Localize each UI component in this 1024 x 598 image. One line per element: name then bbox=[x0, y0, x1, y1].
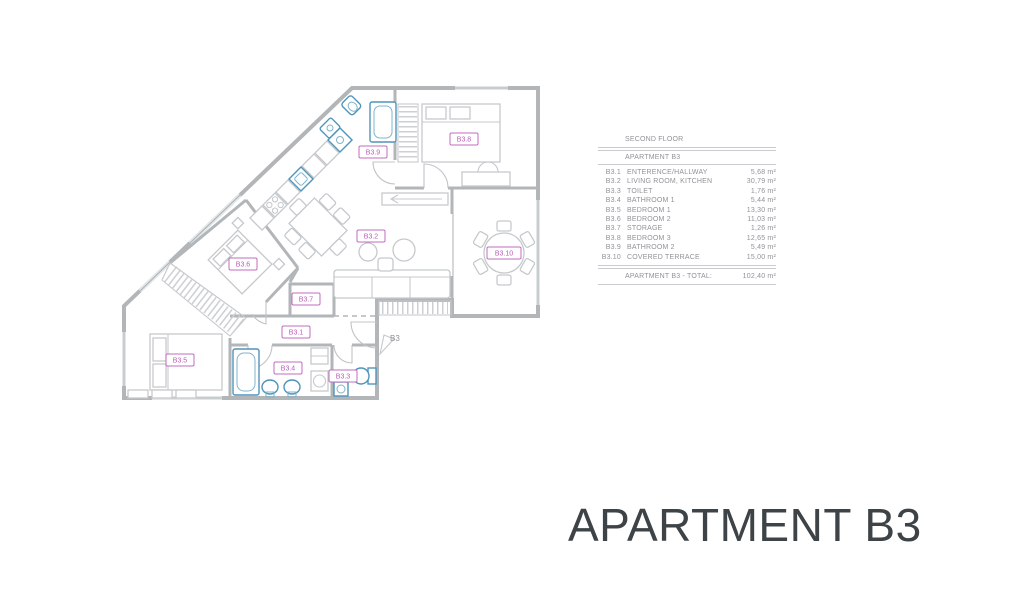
total-label: APARTMENT B3 - TOTAL: bbox=[625, 273, 743, 280]
svg-text:B3.9: B3.9 bbox=[366, 150, 381, 157]
svg-text:B3.4: B3.4 bbox=[281, 366, 296, 373]
room-area: 15,00 m² bbox=[747, 253, 776, 262]
legend-row-b3-1: B3.1ENTERENCE/HALLWAY5,68 m² bbox=[598, 168, 776, 177]
divider bbox=[598, 265, 776, 266]
svg-text:B3.3: B3.3 bbox=[336, 374, 351, 381]
room-name: BATHROOM 1 bbox=[627, 196, 751, 205]
room-label-b3-6: B3.6 bbox=[229, 258, 257, 270]
room-name: ENTERENCE/HALLWAY bbox=[627, 168, 751, 177]
legend-floor-header: SECOND FLOOR bbox=[598, 135, 776, 147]
room-name: STORAGE bbox=[627, 224, 751, 233]
room-area: 5,44 m² bbox=[751, 196, 776, 205]
entrance-marker: B3 bbox=[380, 334, 400, 354]
room-label-b3-1: B3.1 bbox=[282, 326, 310, 338]
room-name: LIVING ROOM, KITCHEN bbox=[627, 177, 747, 186]
svg-text:B3.6: B3.6 bbox=[236, 262, 251, 269]
legend-table: SECOND FLOOR APARTMENT B3 B3.1ENTERENCE/… bbox=[598, 135, 776, 285]
svg-text:B3.10: B3.10 bbox=[495, 251, 513, 258]
svg-text:B3.8: B3.8 bbox=[457, 137, 472, 144]
room-area: 5,68 m² bbox=[751, 168, 776, 177]
legend-total-row: APARTMENT B3 - TOTAL: 102,40 m² bbox=[598, 269, 776, 284]
room-label-b3-2: B3.2 bbox=[357, 230, 385, 242]
legend-rows: B3.1ENTERENCE/HALLWAY5,68 m² B3.2LIVING … bbox=[598, 165, 776, 265]
room-name: TOILET bbox=[627, 187, 751, 196]
entrance-label: B3 bbox=[390, 334, 400, 343]
svg-text:B3.5: B3.5 bbox=[173, 358, 188, 365]
room-code: B3.1 bbox=[598, 168, 621, 177]
svg-text:B3.7: B3.7 bbox=[299, 297, 314, 304]
room-label-b3-5: B3.5 bbox=[166, 354, 194, 366]
room-code: B3.2 bbox=[598, 177, 621, 186]
room-code: B3.3 bbox=[598, 187, 621, 196]
svg-text:B3.2: B3.2 bbox=[364, 234, 379, 241]
legend-apartment-header: APARTMENT B3 bbox=[598, 151, 776, 164]
room-label-b3-8: B3.8 bbox=[450, 133, 478, 145]
svg-text:B3.1: B3.1 bbox=[289, 330, 304, 337]
room-area: 1,76 m² bbox=[751, 187, 776, 196]
room-label-b3-4: B3.4 bbox=[274, 362, 302, 374]
apartment-title: APARTMENT B3 bbox=[568, 498, 1008, 552]
room-area: 12,65 m² bbox=[747, 234, 776, 243]
legend-row-b3-2: B3.2LIVING ROOM, KITCHEN30,79 m² bbox=[598, 177, 776, 186]
total-area: 102,40 m² bbox=[743, 273, 776, 280]
staircase bbox=[379, 301, 451, 315]
room-label-b3-3: B3.3 bbox=[329, 370, 357, 382]
legend-row-b3-3: B3.3TOILET1,76 m² bbox=[598, 187, 776, 196]
room-code: B3.8 bbox=[598, 234, 621, 243]
room-code: B3.9 bbox=[598, 243, 621, 252]
room-name: COVERED TERRACE bbox=[627, 253, 747, 262]
divider bbox=[598, 284, 776, 285]
legend-row-b3-6: B3.6BEDROOM 211,03 m² bbox=[598, 215, 776, 224]
room-code: B3.6 bbox=[598, 215, 621, 224]
room-code: B3.10 bbox=[598, 253, 621, 262]
room-area: 13,30 m² bbox=[747, 206, 776, 215]
legend-row-b3-7: B3.7STORAGE1,26 m² bbox=[598, 224, 776, 233]
room-area: 1,26 m² bbox=[751, 224, 776, 233]
legend-row-b3-8: B3.8BEDROOM 312,65 m² bbox=[598, 234, 776, 243]
room-name: BEDROOM 1 bbox=[627, 206, 747, 215]
room-label-b3-10: B3.10 bbox=[487, 247, 521, 259]
legend-row-b3-10: B3.10COVERED TERRACE15,00 m² bbox=[598, 253, 776, 262]
room-name: BEDROOM 2 bbox=[627, 215, 747, 224]
room-label-b3-9: B3.9 bbox=[359, 146, 387, 158]
room-code: B3.7 bbox=[598, 224, 621, 233]
room-area: 5,49 m² bbox=[751, 243, 776, 252]
legend-row-b3-4: B3.4BATHROOM 15,44 m² bbox=[598, 196, 776, 205]
legend-row-b3-5: B3.5BEDROOM 113,30 m² bbox=[598, 206, 776, 215]
divider bbox=[598, 147, 776, 148]
room-area: 30,79 m² bbox=[747, 177, 776, 186]
room-name: BEDROOM 3 bbox=[627, 234, 747, 243]
room-area: 11,03 m² bbox=[747, 215, 776, 224]
legend-row-b3-9: B3.9BATHROOM 25,49 m² bbox=[598, 243, 776, 252]
room-name: BATHROOM 2 bbox=[627, 243, 751, 252]
room-code: B3.5 bbox=[598, 206, 621, 215]
room-label-b3-7: B3.7 bbox=[292, 293, 320, 305]
room-code: B3.4 bbox=[598, 196, 621, 205]
